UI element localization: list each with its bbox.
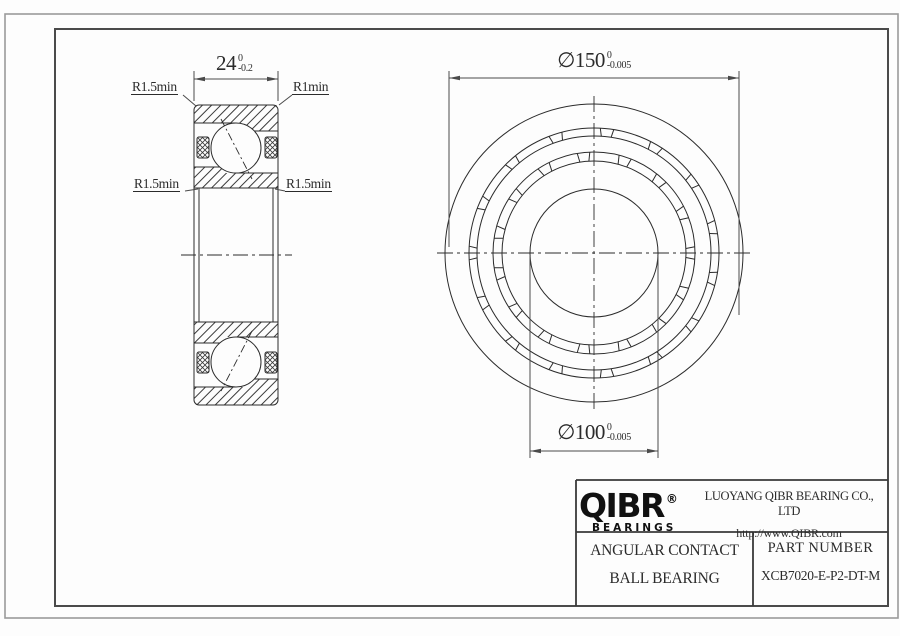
od-dimension-value: 150 — [575, 48, 605, 72]
logo-text: QIBR — [579, 486, 664, 525]
radius-label-inner-left: R1.5min — [133, 177, 180, 192]
bore-dimension-tolerance: 0 -0.005 — [607, 422, 631, 442]
product-type-line1: ANGULAR CONTACT — [578, 542, 751, 560]
front-view-linework — [437, 71, 751, 458]
company-website: http://www.QIBR.com — [693, 526, 885, 541]
registered-mark: ® — [666, 492, 678, 506]
radius-label-inner-right: R1.5min — [285, 177, 332, 192]
width-dimension-value: 24 — [216, 53, 236, 73]
radius-label-outer-right: R1min — [292, 80, 329, 95]
diameter-symbol: ∅ — [557, 420, 575, 444]
width-dimension: 24 0 -0.2 — [216, 53, 253, 73]
radius-label-outer-left: R1.5min — [131, 80, 178, 95]
product-type-cell: ANGULAR CONTACT BALL BEARING — [578, 542, 751, 588]
od-dimension: ∅150 0 -0.005 — [494, 50, 694, 70]
bore-dimension: ∅100 0 -0.005 — [494, 422, 694, 442]
bore-dimension-value: 100 — [575, 420, 605, 444]
company-logo: QIBR® BEARINGS — [579, 484, 678, 534]
company-info: LUOYANG QIBR BEARING CO., LTD http://www… — [693, 489, 885, 541]
company-name: LUOYANG QIBR BEARING CO., LTD — [693, 489, 885, 519]
section-view-linework — [181, 71, 292, 405]
width-dimension-lines — [194, 71, 278, 101]
product-type-line2: BALL BEARING — [578, 570, 751, 588]
width-dimension-tolerance: 0 -0.2 — [238, 53, 253, 73]
od-dimension-tolerance: 0 -0.005 — [607, 50, 631, 70]
part-number-value: XCB7020-E-P2-DT-M — [753, 568, 888, 584]
part-number-cell: PART NUMBER XCB7020-E-P2-DT-M — [753, 540, 888, 584]
logo-subtext: BEARINGS — [592, 522, 678, 534]
part-number-label: PART NUMBER — [753, 540, 888, 557]
diameter-symbol: ∅ — [557, 48, 575, 72]
drawing-sheet: 24 0 -0.2 ∅150 0 -0.005 ∅100 0 -0.005 R1… — [0, 0, 900, 636]
